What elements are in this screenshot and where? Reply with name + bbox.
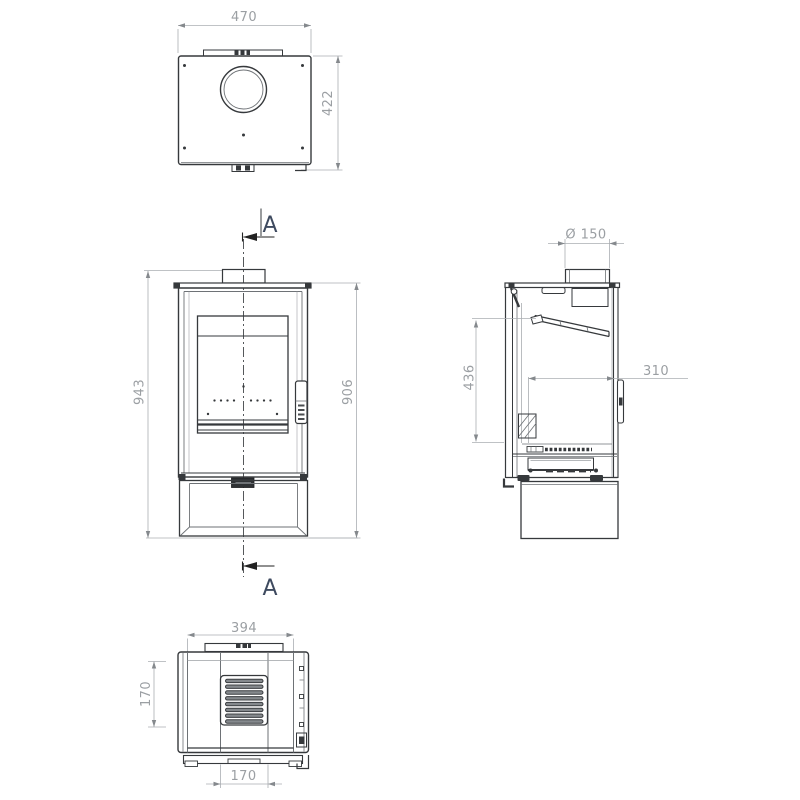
dim-firebox-height: 436 <box>463 319 537 443</box>
top-plate-side <box>505 283 620 288</box>
dim-body-height-label: 906 <box>341 379 356 405</box>
door-glass <box>198 316 289 433</box>
pedestal-side <box>521 482 618 539</box>
dim-front-body-height: 906 <box>309 283 361 538</box>
glass-section-hatch <box>519 414 537 438</box>
dim-vent-height: 170 <box>139 662 166 728</box>
dim-overall-height-label: 943 <box>133 379 148 405</box>
section-label-bottom: A <box>262 576 277 601</box>
door-handle-front <box>296 381 308 424</box>
dim-firebox-height-label: 436 <box>463 364 478 390</box>
top-body-outline <box>179 56 312 165</box>
front-foot <box>504 479 514 487</box>
section-marker-top: A <box>243 209 278 242</box>
bottom-view: 394 <box>139 621 309 788</box>
dim-vent-width: 170 <box>206 765 282 789</box>
airwash-holes <box>207 385 278 415</box>
door-handle-side <box>618 380 624 423</box>
latch-detail <box>297 733 307 747</box>
dim-firebox-depth: 310 <box>529 364 689 381</box>
flue-opening-outer <box>221 67 267 113</box>
top-rear-tab <box>232 165 254 172</box>
flue-box <box>572 289 608 307</box>
dim-top-depth-label: 422 <box>321 90 336 116</box>
side-section-view: Ø 150 436 <box>463 228 689 539</box>
dim-firebox-depth-label: 310 <box>643 364 669 379</box>
top-bracket <box>542 288 565 294</box>
top-fixing-holes <box>183 64 304 150</box>
front-view: A A 943 906 <box>133 209 361 602</box>
flue-collar-side <box>566 270 610 284</box>
top-view: 470 422 <box>178 10 343 172</box>
door-side <box>511 288 522 477</box>
dim-bottom-width-label: 394 <box>231 621 257 636</box>
drawing-canvas: 470 422 A <box>0 0 800 800</box>
bottom-base-bar <box>184 755 309 769</box>
dim-vent-width-label: 170 <box>230 769 256 784</box>
dim-top-depth: 422 <box>301 56 343 170</box>
dim-front-overall-height: 943 <box>133 271 223 539</box>
grate-and-ashpan <box>513 444 617 473</box>
dim-vent-height-label: 170 <box>139 681 154 707</box>
dim-flue-diameter: Ø 150 <box>548 228 624 269</box>
section-label-top: A <box>262 213 277 238</box>
flue-opening-inner <box>224 70 263 109</box>
brand-badge <box>232 478 255 488</box>
top-plate-front <box>174 283 311 288</box>
dim-flue-diameter-label: Ø 150 <box>565 228 606 243</box>
vent-grille <box>221 676 268 726</box>
dim-top-width-label: 470 <box>231 10 257 25</box>
hinge-marks <box>300 667 304 727</box>
stove-technical-drawing: 470 422 A <box>0 0 800 800</box>
baffle-plate <box>531 315 609 337</box>
section-marker-bottom: A <box>243 562 278 602</box>
dim-top-width: 470 <box>178 10 311 53</box>
